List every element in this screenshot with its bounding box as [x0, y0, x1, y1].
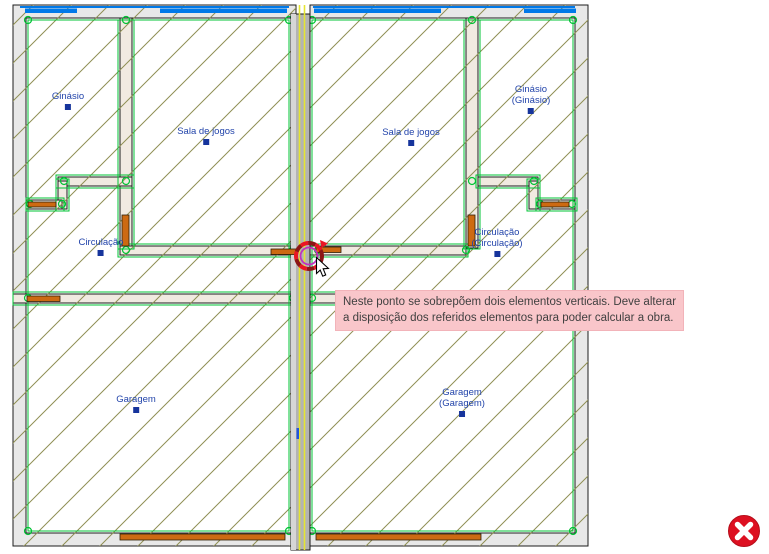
room-label-ginasio-left: Ginásio — [52, 91, 84, 110]
room-marker-icon[interactable] — [528, 108, 534, 114]
room-marker-icon[interactable] — [203, 139, 209, 145]
warning-tooltip-line2: a disposição dos referidos elementos par… — [343, 310, 676, 326]
room-label-text: Garagem — [439, 387, 485, 398]
party-wall-blue-tick — [297, 428, 300, 439]
room-label-text: Circulação — [471, 227, 522, 238]
room-label-sala-right: Sala de jogos — [382, 127, 440, 146]
room-marker-icon[interactable] — [98, 250, 104, 256]
room-marker-icon[interactable] — [494, 251, 500, 257]
room-marker-icon[interactable] — [408, 140, 414, 146]
room-label-text: Circulação — [79, 237, 124, 248]
error-x-icon — [727, 514, 761, 548]
room-label-text: Garagem — [116, 394, 156, 405]
room-label-text: Sala de jogos — [177, 126, 235, 137]
room-label-garagem-right: Garagem (Garagem) — [439, 387, 485, 417]
room-label-sala-left: Sala de jogos — [177, 126, 235, 145]
warning-tooltip-line1: Neste ponto se sobrepõem dois elementos … — [343, 294, 676, 310]
hatch-left-unit — [13, 5, 296, 546]
room-marker-icon[interactable] — [65, 104, 71, 110]
room-label-text: Sala de jogos — [382, 127, 440, 138]
room-label-text: (Circulação) — [471, 238, 522, 249]
room-label-ginasio-right: Ginásio (Ginásio) — [512, 84, 551, 114]
room-label-text: Ginásio — [512, 84, 551, 95]
error-close-button[interactable] — [727, 514, 761, 548]
floor-plan-drawing[interactable] — [0, 0, 769, 554]
room-label-garagem-left: Garagem — [116, 394, 156, 413]
room-label-circulacao-left: Circulação — [79, 237, 124, 256]
room-marker-icon[interactable] — [459, 411, 465, 417]
room-label-circulacao-right: Circulação (Circulação) — [471, 227, 522, 257]
party-wall — [291, 5, 310, 550]
room-label-text: (Garagem) — [439, 398, 485, 409]
warning-tooltip: Neste ponto se sobrepõem dois elementos … — [335, 290, 684, 331]
floor-plan-canvas[interactable]: Ginásio Sala de jogos Circulação Garagem… — [0, 0, 769, 554]
room-label-text: Ginásio — [52, 91, 84, 102]
room-marker-icon[interactable] — [133, 407, 139, 413]
room-label-text: (Ginásio) — [512, 95, 551, 106]
